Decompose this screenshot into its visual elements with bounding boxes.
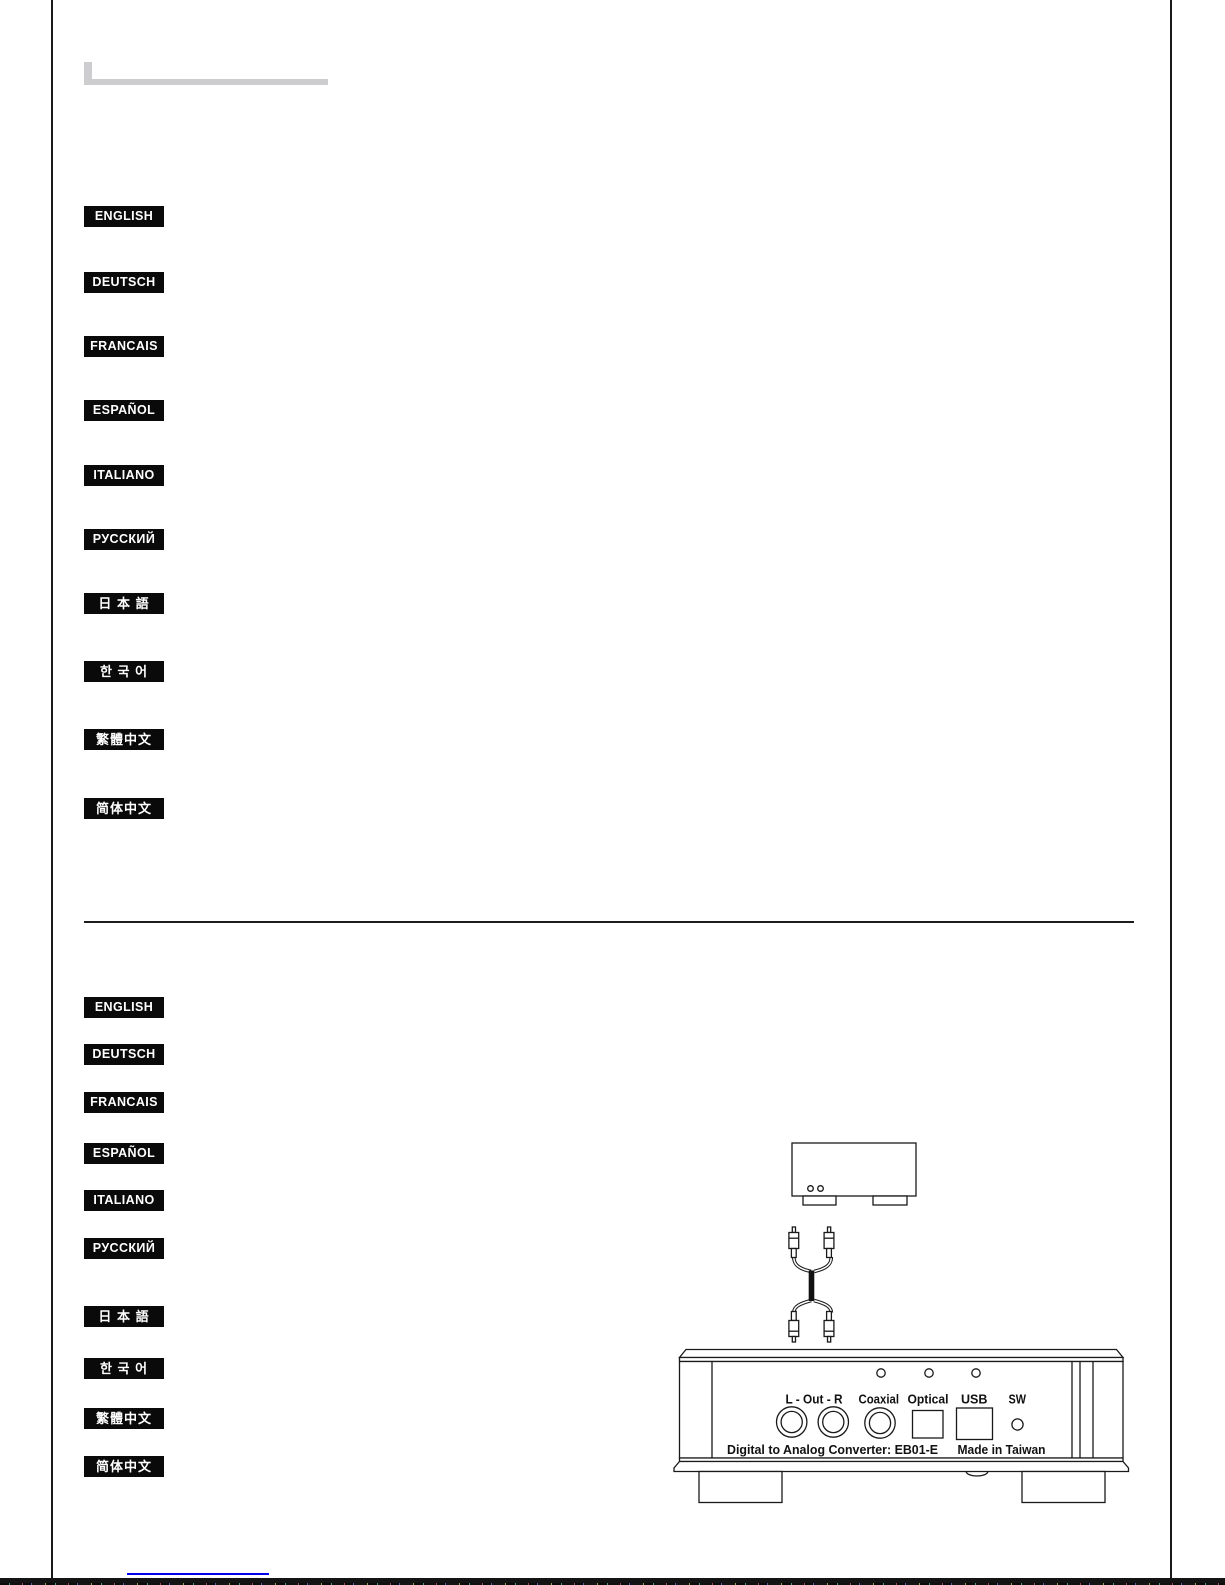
language-badge-italiano: ITALIANO [84,465,164,486]
rca-plug-pin [792,1227,795,1233]
section-divider [84,921,1134,923]
language-badge-espanol-2: ESPAÑOL [84,1143,164,1164]
label-switch: SW [1009,1392,1027,1407]
language-badge-italiano-2: ITALIANO [84,1190,164,1211]
amplifier-drawing [792,1143,916,1205]
connection-diagram: L - Out - R Coaxial Optical USB SW Digit… [650,1120,1140,1515]
label-coaxial: Coaxial [859,1392,900,1407]
rca-plug-neck [827,1249,832,1258]
section-title-placeholder-underline [84,79,328,85]
amplifier-foot-left [803,1196,836,1205]
page-left-border [51,0,53,1578]
rca-plug-body [824,1233,834,1249]
rca-plug-neck [791,1312,796,1321]
language-badge-espanol: ESPAÑOL [84,400,164,421]
dac-top-bevel [680,1350,1124,1358]
cable-sleeve [809,1271,815,1302]
label-line-out: L - Out - R [786,1392,844,1407]
dac-foot-right [1022,1472,1105,1503]
language-badge-english-2: ENGLISH [84,997,164,1018]
language-badge-francais-2: FRANCAIS [84,1092,164,1113]
optical-port [913,1411,944,1439]
amplifier-body [792,1143,916,1196]
language-badge-francais: FRANCAIS [84,336,164,357]
language-badge-deutsch: DEUTSCH [84,272,164,293]
language-badge-deutsch-2: DEUTSCH [84,1044,164,1065]
language-badge-korean-2: 한 국 어 [84,1358,164,1379]
language-badge-trad-chinese-2: 繁體中文 [84,1408,164,1429]
language-badge-russian-2: РУССКИЙ [84,1238,164,1259]
page-right-border [1170,0,1172,1578]
device-origin-text: Made in Taiwan [958,1442,1046,1457]
scan-bottom-noise-band [0,1578,1225,1585]
rca-plug-neck [791,1249,796,1258]
amplifier-foot-right [873,1196,907,1205]
label-optical: Optical [908,1392,949,1407]
language-badge-korean: 한 국 어 [84,661,164,682]
rca-plug-pin [828,1227,831,1233]
label-usb: USB [961,1392,988,1407]
rca-plug-body [789,1233,799,1249]
language-badge-english: ENGLISH [84,206,164,227]
dac-rear-panel-drawing: L - Out - R Coaxial Optical USB SW Digit… [674,1350,1129,1503]
usb-port [957,1408,993,1440]
rca-cable-drawing [789,1227,834,1342]
dac-bottom-bevel [674,1462,1129,1472]
language-badge-trad-chinese: 繁體中文 [84,729,164,750]
dac-bottom-screw-bump [966,1472,988,1477]
footer-link-underline[interactable] [127,1573,269,1575]
language-badge-russian: РУССКИЙ [84,529,164,550]
rca-plug-pin [792,1337,795,1343]
rca-plug-body [789,1321,799,1337]
rca-plug-neck [827,1312,832,1321]
dac-foot-left [699,1472,782,1503]
rca-plug-body [824,1321,834,1337]
language-badge-japanese: 日 本 語 [84,593,164,614]
language-badge-japanese-2: 日 本 語 [84,1306,164,1327]
language-badge-simp-chinese: 简体中文 [84,798,164,819]
device-model-text: Digital to Analog Converter: EB01-E [727,1442,938,1457]
rca-plug-pin [828,1337,831,1343]
language-badge-simp-chinese-2: 简体中文 [84,1456,164,1477]
